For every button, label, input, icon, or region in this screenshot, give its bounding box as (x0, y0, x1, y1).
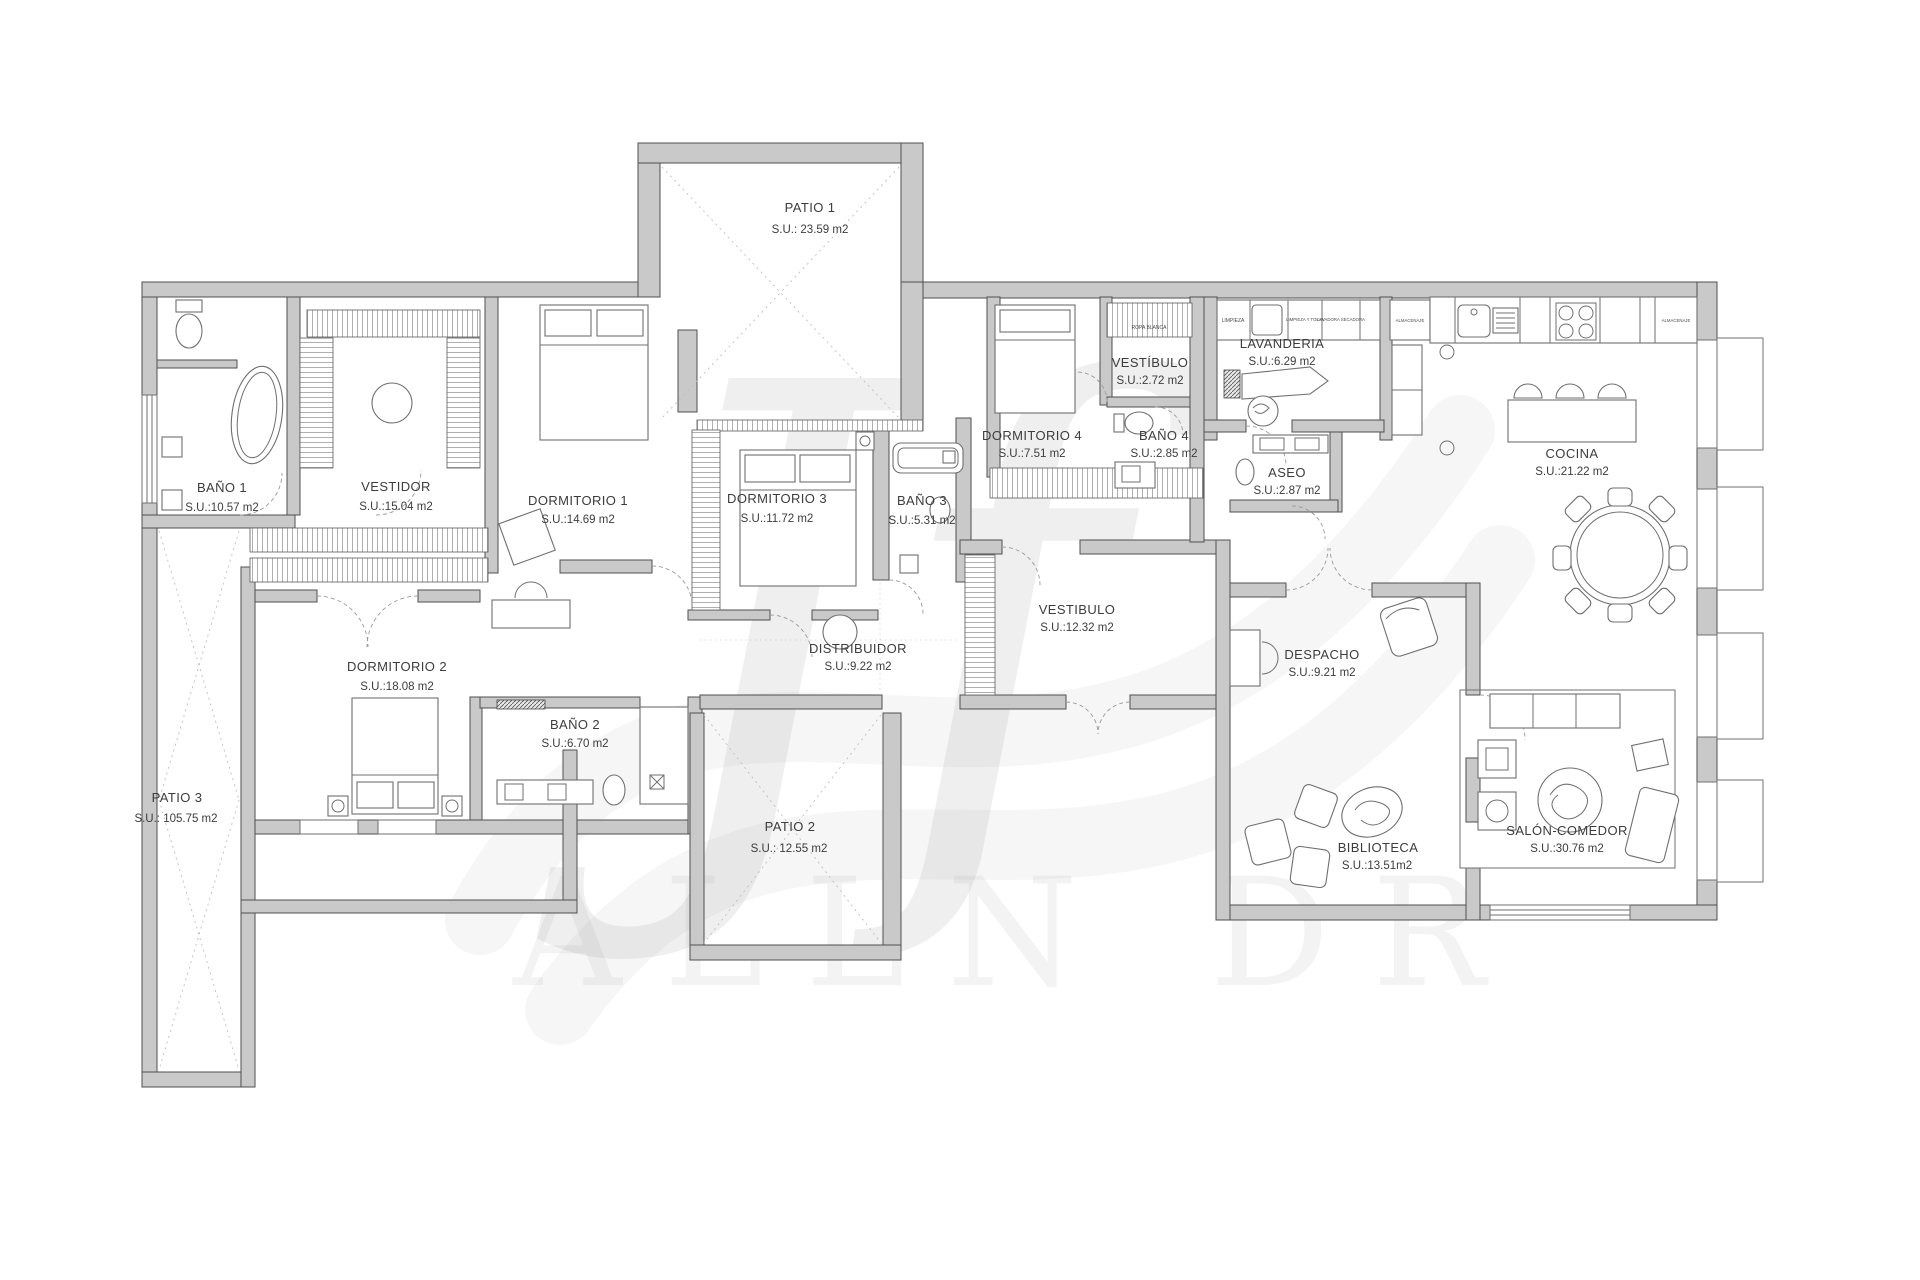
ironing-board-icon (1242, 367, 1328, 399)
window-salon-icon (1490, 905, 1630, 920)
bathtub-icon (225, 363, 288, 467)
svg-text:ASEO: ASEO (1268, 465, 1306, 480)
svg-text:S.U.:9.22 m2: S.U.:9.22 m2 (824, 661, 891, 673)
dining-table-icon (1570, 505, 1670, 605)
svg-text:BAÑO 1: BAÑO 1 (197, 480, 247, 495)
kitchen-island-icon (1508, 400, 1636, 442)
closet-vestidor-left-icon (300, 338, 333, 468)
nightstand-icon (442, 796, 462, 816)
floor-plan: Jf ALLN DR (0, 0, 1920, 1280)
dining-set (1553, 488, 1687, 622)
svg-text:DORMITORIO 2: DORMITORIO 2 (347, 659, 447, 674)
svg-text:S.U.:6.70 m2: S.U.:6.70 m2 (541, 738, 608, 750)
label-almacenaje-cocina: ALMACENAJE (1662, 318, 1691, 323)
sink-icon (162, 437, 182, 457)
chair-icon (1669, 546, 1687, 570)
closet-dorm3-icon (692, 430, 720, 610)
livingroom-furniture (1460, 690, 1680, 868)
svg-text:BIBLIOTECA: BIBLIOTECA (1338, 840, 1419, 855)
armchair-icon (1632, 739, 1669, 771)
svg-text:S.U.:9.21 m2: S.U.:9.21 m2 (1288, 667, 1355, 679)
sink-icon (900, 555, 918, 573)
closet-vestibulo-icon (965, 555, 995, 695)
room-label-bano-4: BAÑO 4 S.U.:2.85 m2 (1130, 428, 1197, 460)
closet-corridor-2-icon (250, 558, 488, 582)
nightstand-icon (328, 796, 348, 816)
room-label-lavanderia: LAVANDERIA S.U.:6.29 m2 (1240, 336, 1324, 368)
armchair-icon (1290, 846, 1331, 889)
towel-rail-icon (497, 700, 545, 709)
stool-icon (1248, 396, 1278, 426)
desk-chair-icon (515, 582, 547, 598)
closet-vestidor-top-icon (307, 310, 480, 337)
sofa-icon (1490, 694, 1620, 728)
side-table-icon (1478, 740, 1516, 778)
vent-icon (1493, 308, 1518, 333)
bedroom2-furniture (328, 698, 462, 816)
svg-text:LAVANDERIA: LAVANDERIA (1240, 336, 1324, 351)
svg-text:S.U.:2.72 m2: S.U.:2.72 m2 (1116, 375, 1183, 387)
chair-icon (1553, 546, 1571, 570)
laundry-furniture (1224, 367, 1328, 426)
room-label-bano-2: BAÑO 2 S.U.:6.70 m2 (541, 717, 608, 750)
svg-text:S.U.:10.57 m2: S.U.:10.57 m2 (185, 502, 259, 514)
svg-text:DORMITORIO 1: DORMITORIO 1 (528, 493, 628, 508)
svg-text:SALÓN-COMEDOR: SALÓN-COMEDOR (1506, 823, 1628, 838)
svg-text:BAÑO 2: BAÑO 2 (550, 717, 600, 732)
svg-text:S.U.:30.76 m2: S.U.:30.76 m2 (1530, 843, 1604, 855)
floor-plan-page: Jf ALLN DR (0, 0, 1920, 1280)
patio1-window-band-icon (697, 420, 923, 431)
label-lavadora-secadora: LAVADORA SECADORA (1317, 317, 1365, 322)
svg-text:PATIO 2: PATIO 2 (765, 819, 816, 834)
label-ropa-blanca: ROPA BLANCA (1132, 325, 1168, 331)
stool-icon (1556, 384, 1584, 398)
desk-icon (1230, 630, 1260, 686)
svg-text:S.U.:2.85 m2: S.U.:2.85 m2 (1130, 448, 1197, 460)
svg-text:S.U.:14.69 m2: S.U.:14.69 m2 (541, 514, 615, 526)
toilet-icon (176, 314, 202, 348)
svg-text:S.U.:21.22 m2: S.U.:21.22 m2 (1535, 466, 1609, 478)
label-limpieza: LIMPIEZA (1222, 318, 1245, 324)
svg-text:S.U.: 105.75 m2: S.U.: 105.75 m2 (134, 813, 217, 825)
room-label-aseo: ASEO S.U.:2.87 m2 (1253, 465, 1320, 497)
kitchen-sink-icon (1458, 305, 1490, 337)
svg-text:S.U.:15.04 m2: S.U.:15.04 m2 (359, 501, 433, 513)
room-label-bano-1: BAÑO 1 S.U.:10.57 m2 (185, 480, 259, 514)
room-label-vestidor: VESTIDOR S.U.:15.04 m2 (359, 479, 433, 513)
svg-text:S.U.:5.31 m2: S.U.:5.31 m2 (888, 515, 955, 527)
svg-text:DORMITORIO 3: DORMITORIO 3 (727, 491, 827, 506)
label-almacenaje-lavanderia: ALMACENAJE (1396, 318, 1425, 323)
window-dorm2-icon (300, 820, 358, 834)
svg-text:VESTIBULO: VESTIBULO (1039, 602, 1116, 617)
closet-vestidor-right-icon (447, 338, 480, 468)
svg-text:PATIO 1: PATIO 1 (785, 200, 836, 215)
svg-text:DORMITORIO 4: DORMITORIO 4 (982, 428, 1082, 443)
room-label-cocina: COCINA S.U.:21.22 m2 (1535, 446, 1609, 478)
hamper-icon (1224, 370, 1240, 398)
svg-text:S.U.:12.32 m2: S.U.:12.32 m2 (1040, 622, 1114, 634)
room-label-vestibulo-pequeno: VESTÍBULO S.U.:2.72 m2 (1112, 355, 1189, 387)
svg-text:DISTRIBUIDOR: DISTRIBUIDOR (809, 641, 907, 656)
bedroom1-furniture (492, 305, 648, 628)
room-label-dormitorio-1: DORMITORIO 1 S.U.:14.69 m2 (528, 493, 628, 526)
nightstand-icon (856, 432, 874, 450)
rug-oval-icon (1334, 778, 1409, 846)
sink-icon (162, 490, 182, 510)
svg-text:VESTIDOR: VESTIDOR (361, 479, 431, 494)
svg-text:S.U.: 23.59 m2: S.U.: 23.59 m2 (772, 224, 849, 236)
chair-icon (1608, 604, 1632, 622)
bathroom1-fixtures (162, 300, 289, 510)
svg-text:VESTÍBULO: VESTÍBULO (1112, 355, 1189, 370)
svg-text:BAÑO 4: BAÑO 4 (1139, 428, 1189, 443)
faucet-icon (943, 451, 955, 463)
svg-text:DESPACHO: DESPACHO (1284, 647, 1359, 662)
chaise-icon (1624, 786, 1680, 864)
watermark-band-text: ALLN DR (512, 847, 1527, 1021)
room-label-patio-1: PATIO 1 S.U.: 23.59 m2 (772, 200, 849, 236)
knob-icon (1440, 345, 1454, 359)
ottoman-icon (372, 383, 412, 423)
desk-icon (492, 600, 570, 628)
closet-ropa-blanca-icon (1107, 303, 1192, 337)
svg-text:S.U.:11.72 m2: S.U.:11.72 m2 (741, 513, 814, 525)
closet-corridor-1-icon (250, 528, 488, 552)
svg-text:BAÑO 3: BAÑO 3 (897, 493, 947, 508)
svg-text:S.U.:2.87 m2: S.U.:2.87 m2 (1253, 485, 1320, 497)
stool-icon (1598, 384, 1626, 398)
toilet-tank-icon (1114, 414, 1124, 432)
bedroom4-furniture (995, 305, 1075, 413)
svg-text:S.U.:7.51 m2: S.U.:7.51 m2 (998, 448, 1065, 460)
svg-text:COCINA: COCINA (1546, 446, 1599, 461)
room-label-dormitorio-2: DORMITORIO 2 S.U.:18.08 m2 (347, 659, 447, 693)
toilet-icon (1236, 459, 1254, 485)
svg-text:S.U.:6.29 m2: S.U.:6.29 m2 (1248, 356, 1315, 368)
svg-text:PATIO 3: PATIO 3 (152, 790, 203, 805)
svg-text:S.U.:13.51m2: S.U.:13.51m2 (1342, 860, 1412, 872)
closet-dorm4-icon (990, 468, 1203, 498)
window-dorm2b-icon (378, 820, 436, 834)
svg-text:S.U.: 12.55 m2: S.U.: 12.55 m2 (751, 843, 828, 855)
toilet-icon (603, 775, 625, 805)
svg-text:S.U.:18.08 m2: S.U.:18.08 m2 (360, 681, 434, 693)
laundry-sink-icon (1252, 305, 1282, 335)
chair-icon (1608, 488, 1632, 506)
window-left-icon (142, 395, 157, 503)
toilet-tank-icon (176, 300, 202, 312)
stool-icon (1514, 384, 1542, 398)
